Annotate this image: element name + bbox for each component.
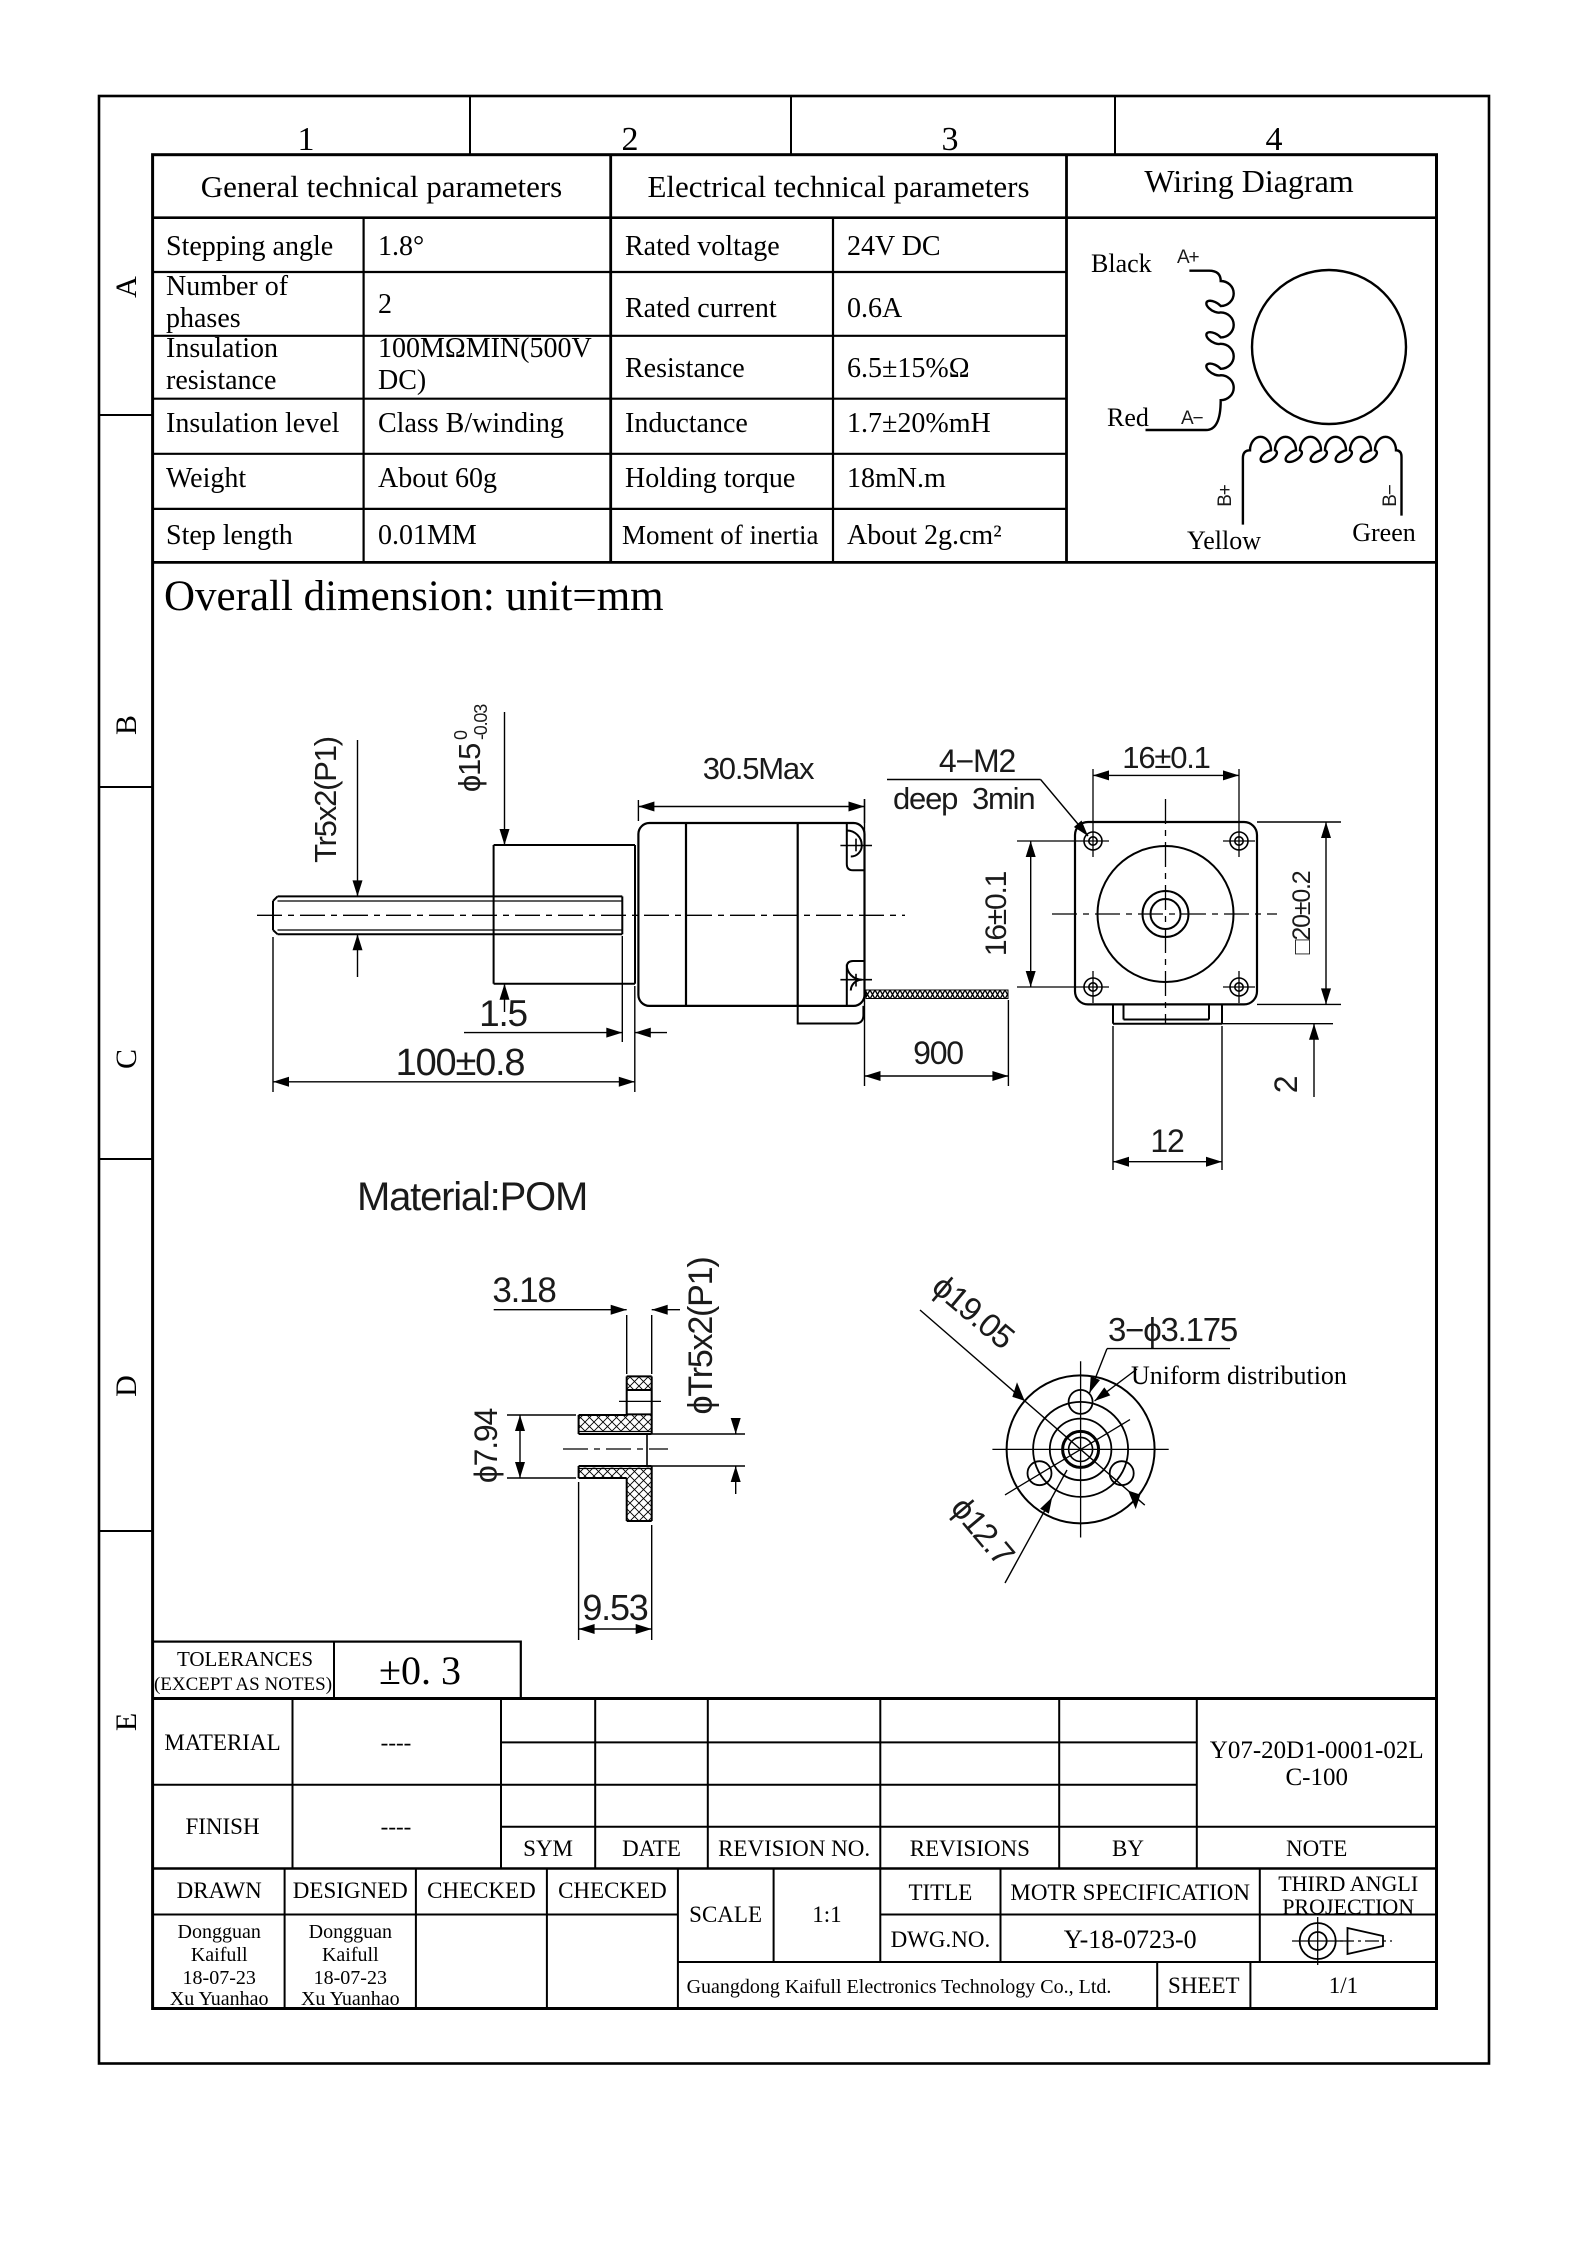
svg-text:Step length: Step length <box>166 520 293 551</box>
svg-text:0: 0 <box>451 730 471 740</box>
svg-text:Dongguan: Dongguan <box>178 1921 261 1943</box>
svg-text:Holding torque: Holding torque <box>625 463 795 494</box>
svg-text:2: 2 <box>1268 1076 1304 1093</box>
svg-text:18-07-23: 18-07-23 <box>314 1967 387 1989</box>
svg-text:BY: BY <box>1112 1836 1144 1861</box>
svg-text:Stepping angle: Stepping angle <box>166 231 333 262</box>
svg-text:Red: Red <box>1107 403 1149 432</box>
svg-text:About 2g.cm²: About 2g.cm² <box>847 520 1002 551</box>
svg-text:3−ϕ3.175: 3−ϕ3.175 <box>1108 1311 1237 1348</box>
svg-text:24V DC: 24V DC <box>847 231 941 262</box>
svg-text:1.7±20%mH: 1.7±20%mH <box>847 408 991 439</box>
svg-text:16±0.1: 16±0.1 <box>980 871 1013 956</box>
svg-text:TOLERANCES: TOLERANCES <box>177 1647 313 1671</box>
svg-text:B: B <box>110 715 143 735</box>
svg-text:Black: Black <box>1091 249 1152 278</box>
svg-text:1.8°: 1.8° <box>378 231 424 262</box>
svg-text:TITLE: TITLE <box>908 1880 972 1905</box>
svg-text:1:1: 1:1 <box>812 1902 841 1927</box>
svg-text:±0. 3: ±0. 3 <box>379 1648 461 1693</box>
svg-text:MATERIAL: MATERIAL <box>164 1730 280 1755</box>
svg-text:deep 3min: deep 3min <box>893 781 1034 816</box>
svg-text:Y07-20D1-0001-02L: Y07-20D1-0001-02L <box>1210 1737 1424 1764</box>
svg-text:B+: B+ <box>1215 484 1236 506</box>
svg-text:Number of: Number of <box>166 271 289 302</box>
svg-text:DRAWN: DRAWN <box>177 1878 262 1903</box>
svg-text:Inductance: Inductance <box>625 408 748 439</box>
svg-text:Kaifull: Kaifull <box>191 1944 248 1966</box>
svg-text:Class B/winding: Class B/winding <box>378 408 564 439</box>
svg-text:16±0.1: 16±0.1 <box>1122 740 1209 775</box>
svg-text:CHECKED: CHECKED <box>427 1878 536 1903</box>
svg-text:2: 2 <box>622 121 639 158</box>
svg-text:18mN.m: 18mN.m <box>847 463 946 494</box>
svg-text:resistance: resistance <box>166 365 276 396</box>
svg-text:2: 2 <box>378 289 392 320</box>
svg-text:B−: B− <box>1380 484 1401 506</box>
svg-text:Rated voltage: Rated voltage <box>625 231 780 262</box>
svg-text:100±0.8: 100±0.8 <box>396 1042 525 1084</box>
svg-text:DATE: DATE <box>622 1836 681 1861</box>
svg-text:Overall dimension: unit=mm: Overall dimension: unit=mm <box>164 573 664 620</box>
svg-text:Y-18-0723-0: Y-18-0723-0 <box>1064 1925 1197 1954</box>
svg-text:phases: phases <box>166 303 241 334</box>
svg-text:CHECKED: CHECKED <box>558 1878 667 1903</box>
svg-text:9.53: 9.53 <box>582 1587 647 1628</box>
svg-text:□20±0.2: □20±0.2 <box>1288 871 1316 954</box>
svg-text:A−: A− <box>1181 408 1203 429</box>
svg-text:-0.03: -0.03 <box>471 704 491 740</box>
svg-text:Uniform distribution: Uniform distribution <box>1131 1361 1347 1390</box>
svg-text:(EXCEPT AS NOTES): (EXCEPT AS NOTES) <box>154 1674 332 1695</box>
svg-text:Xu Yuanhao: Xu Yuanhao <box>170 1988 269 2010</box>
svg-text:PROJECTION: PROJECTION <box>1282 1894 1414 1919</box>
svg-text:Green: Green <box>1352 518 1416 547</box>
svg-text:Dongguan: Dongguan <box>309 1921 392 1943</box>
svg-text:1/1: 1/1 <box>1329 1973 1358 1998</box>
svg-text:ϕ15: ϕ15 <box>452 744 487 792</box>
svg-text:Weight: Weight <box>166 463 246 494</box>
svg-text:SYM: SYM <box>523 1836 573 1861</box>
svg-text:DC): DC) <box>378 365 426 396</box>
svg-text:REVISIONS: REVISIONS <box>910 1836 1030 1861</box>
svg-text:----: ---- <box>381 1730 412 1755</box>
svg-text:30.5Max: 30.5Max <box>703 751 815 786</box>
svg-text:900: 900 <box>913 1035 963 1071</box>
svg-text:ϕTr5x2(P1): ϕTr5x2(P1) <box>682 1258 720 1415</box>
svg-text:0.01MM: 0.01MM <box>378 520 477 551</box>
svg-text:NOTE: NOTE <box>1286 1836 1347 1861</box>
svg-text:SCALE: SCALE <box>689 1902 762 1927</box>
svg-text:18-07-23: 18-07-23 <box>183 1967 256 1989</box>
svg-text:12: 12 <box>1150 1123 1184 1159</box>
svg-text:SHEET: SHEET <box>1168 1973 1240 1998</box>
svg-text:DESIGNED: DESIGNED <box>293 1878 408 1903</box>
svg-text:Electrical technical parameter: Electrical technical parameters <box>647 169 1029 204</box>
svg-text:4−M2: 4−M2 <box>939 743 1016 779</box>
svg-text:MOTR SPECIFICATION: MOTR SPECIFICATION <box>1010 1880 1250 1905</box>
svg-text:Insulation level: Insulation level <box>166 408 340 439</box>
svg-text:Insulation: Insulation <box>166 333 278 364</box>
svg-text:Guangdong Kaifull Electronics: Guangdong Kaifull Electronics Technology… <box>687 1976 1112 1998</box>
svg-text:3.18: 3.18 <box>492 1271 555 1310</box>
svg-text:FINISH: FINISH <box>185 1814 259 1839</box>
svg-text:DWG.NO.: DWG.NO. <box>891 1927 991 1952</box>
svg-text:3: 3 <box>942 121 959 158</box>
svg-text:Kaifull: Kaifull <box>322 1944 379 1966</box>
svg-text:0.6A: 0.6A <box>847 293 903 324</box>
svg-text:C: C <box>110 1049 143 1069</box>
svg-text:E: E <box>110 1713 143 1731</box>
svg-text:Yellow: Yellow <box>1187 526 1261 555</box>
svg-text:1: 1 <box>298 121 315 158</box>
svg-text:Rated current: Rated current <box>625 293 777 324</box>
svg-text:4: 4 <box>1266 121 1283 158</box>
svg-text:C-100: C-100 <box>1285 1764 1348 1791</box>
svg-text:Wiring Diagram: Wiring Diagram <box>1144 163 1353 199</box>
svg-text:REVISION NO.: REVISION NO. <box>718 1836 870 1861</box>
svg-text:Material:POM: Material:POM <box>357 1175 587 1219</box>
svg-text:D: D <box>110 1375 143 1397</box>
svg-text:THIRD ANGLI: THIRD ANGLI <box>1278 1871 1418 1896</box>
svg-text:ϕ7.94: ϕ7.94 <box>468 1409 504 1484</box>
svg-text:100MΩMIN(500V: 100MΩMIN(500V <box>378 333 592 364</box>
svg-text:----: ---- <box>381 1814 412 1839</box>
svg-text:Resistance: Resistance <box>625 353 745 384</box>
svg-text:A: A <box>110 276 143 298</box>
svg-text:Tr5x2(P1): Tr5x2(P1) <box>308 737 343 863</box>
svg-text:A+: A+ <box>1177 247 1199 268</box>
svg-text:1.5: 1.5 <box>479 993 527 1034</box>
svg-text:Moment of inertia: Moment of inertia <box>622 520 818 550</box>
svg-text:6.5±15%Ω: 6.5±15%Ω <box>847 353 970 384</box>
svg-text:General technical parameters: General technical parameters <box>201 169 562 204</box>
svg-text:About 60g: About 60g <box>378 463 497 494</box>
svg-text:Xu Yuanhao: Xu Yuanhao <box>301 1988 400 2010</box>
